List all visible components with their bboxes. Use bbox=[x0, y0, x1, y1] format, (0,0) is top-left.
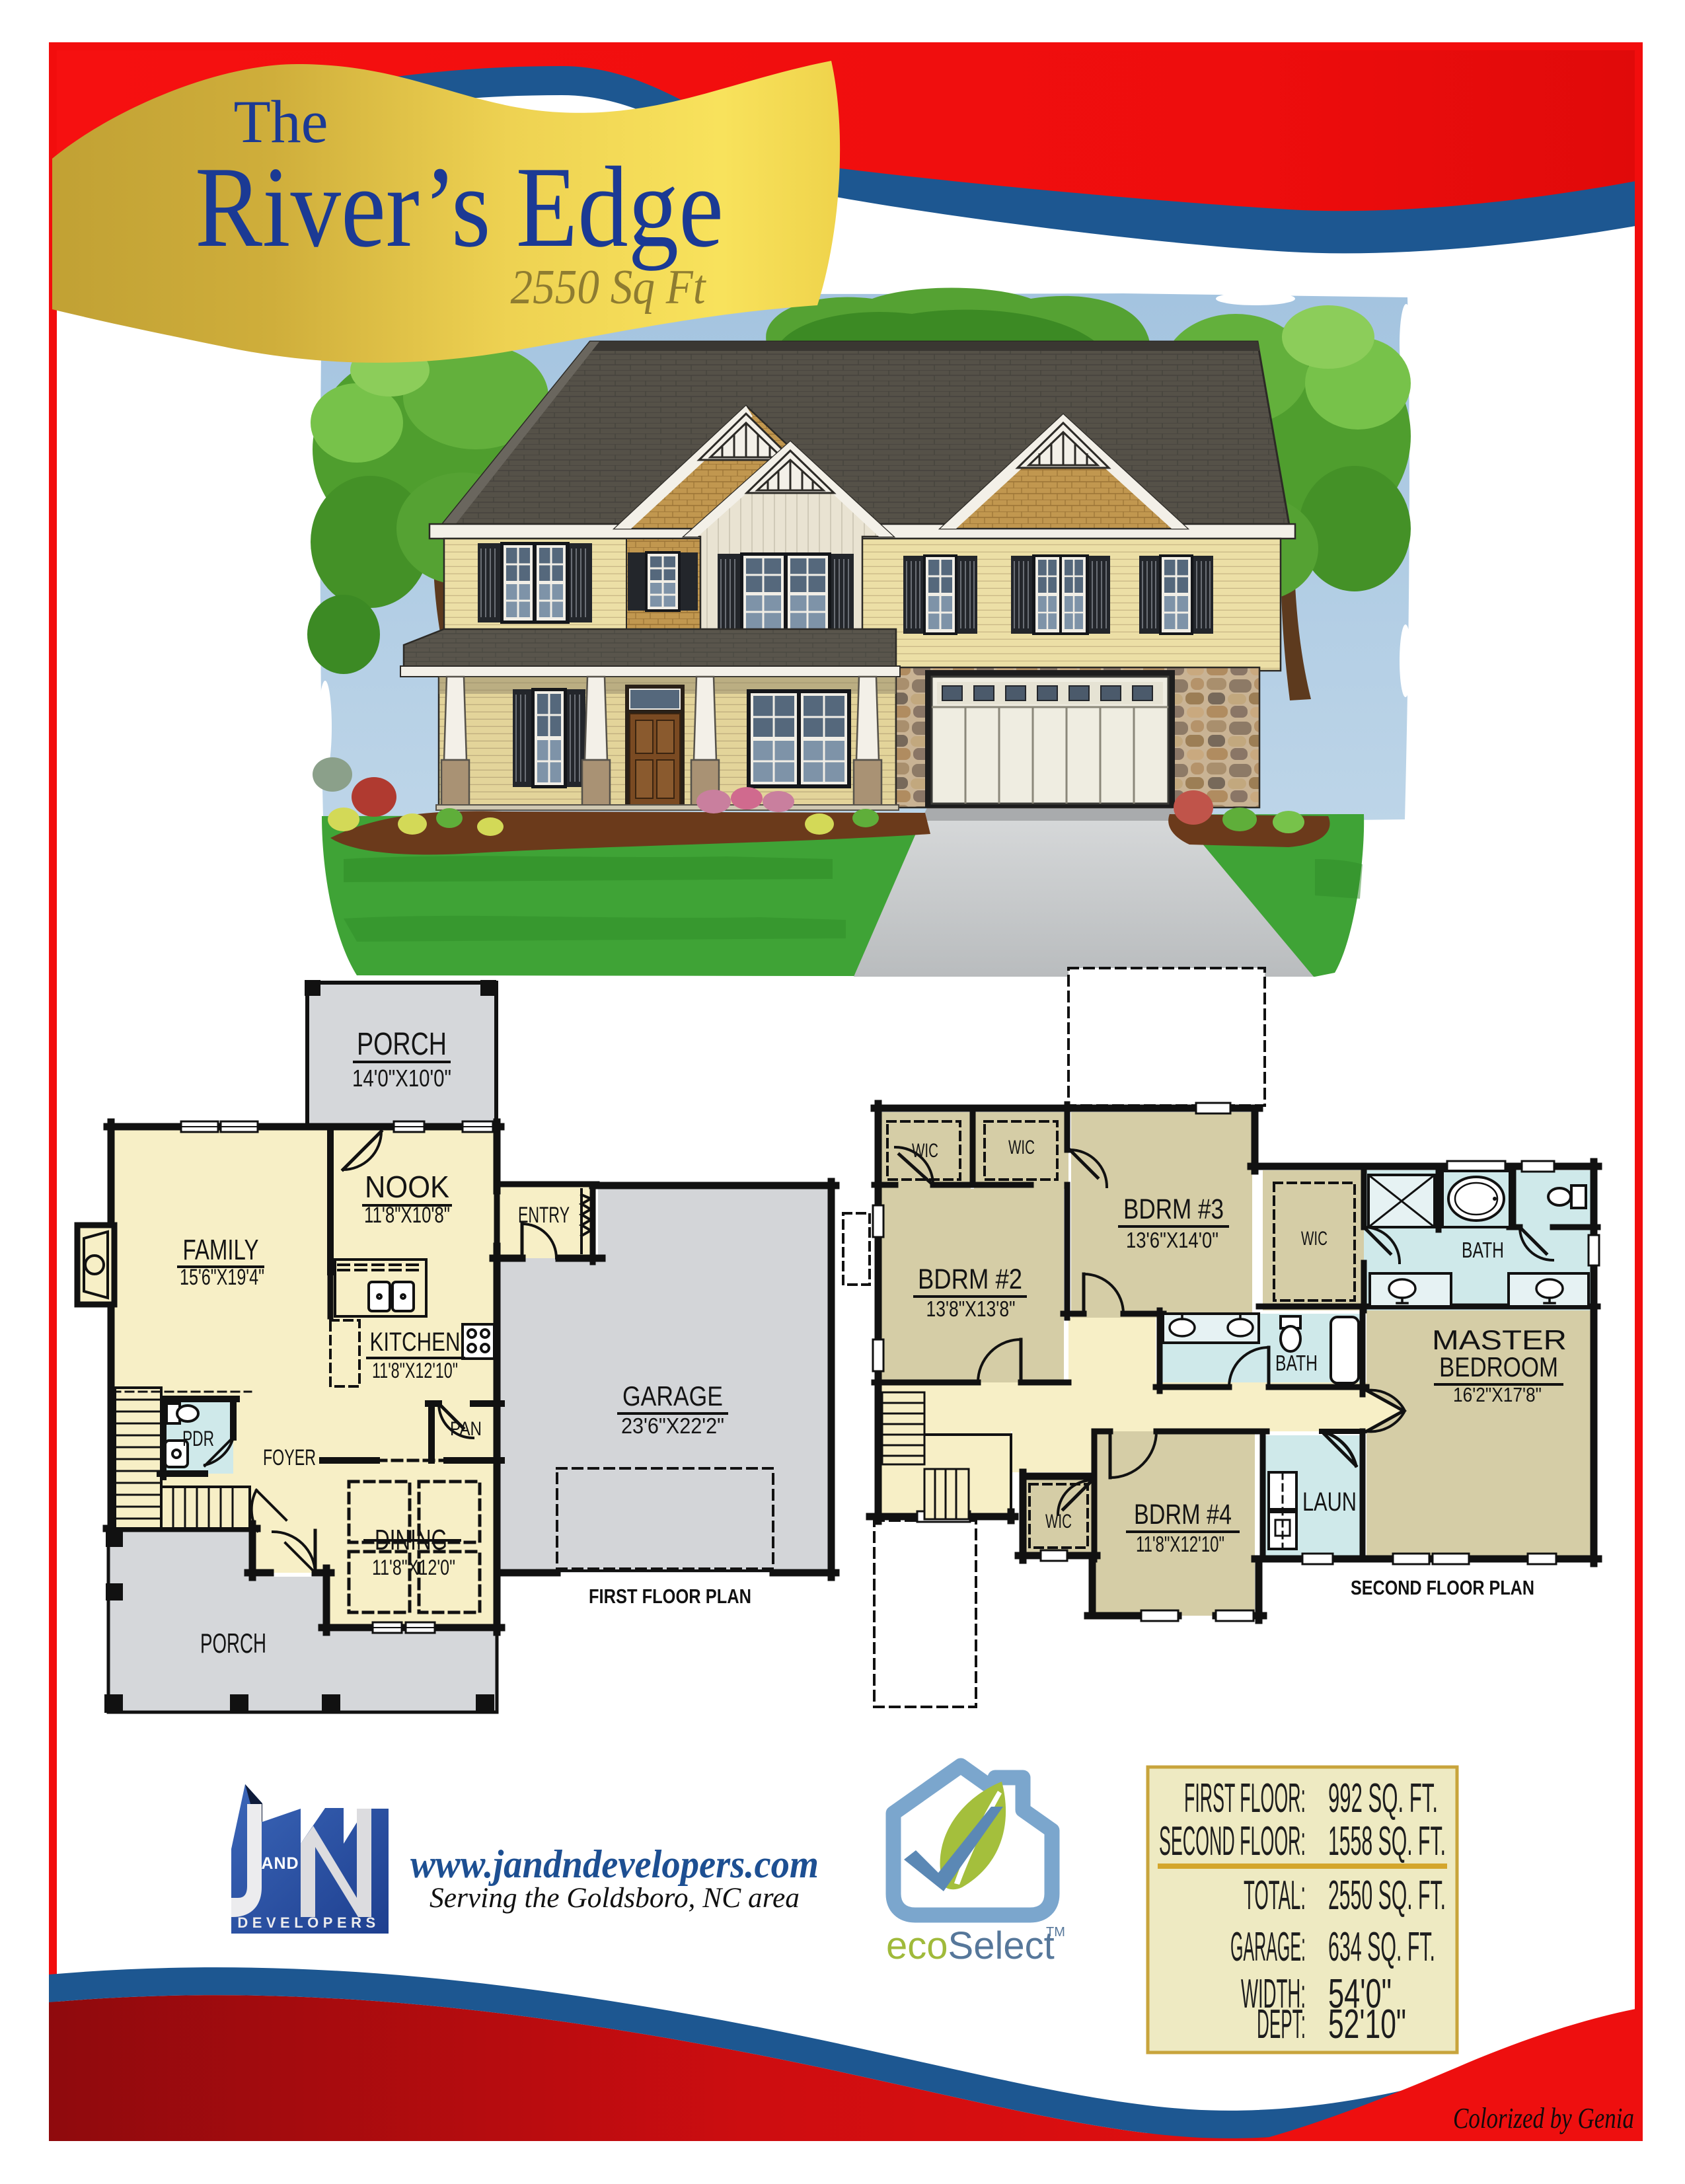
svg-text:2550 Sq Ft: 2550 Sq Ft bbox=[511, 260, 707, 315]
svg-text:BDRM #2: BDRM #2 bbox=[918, 1263, 1022, 1295]
svg-text:www.jandndevelopers.com: www.jandndevelopers.com bbox=[410, 1842, 819, 1886]
svg-text:BEDROOM: BEDROOM bbox=[1439, 1351, 1558, 1382]
svg-text:11'8"X12'10": 11'8"X12'10" bbox=[1136, 1532, 1224, 1556]
svg-text:11'8"X12'0": 11'8"X12'0" bbox=[372, 1556, 455, 1579]
svg-text:AND: AND bbox=[261, 1854, 299, 1873]
svg-text:MASTER: MASTER bbox=[1432, 1324, 1567, 1355]
svg-text:52'10": 52'10" bbox=[1328, 2002, 1406, 2047]
svg-text:BDRM #4: BDRM #4 bbox=[1134, 1499, 1232, 1530]
svg-text:FIRST FLOOR PLAN: FIRST FLOOR PLAN bbox=[589, 1585, 751, 1608]
svg-text:634 SQ. FT.: 634 SQ. FT. bbox=[1328, 1924, 1435, 1970]
svg-text:SECOND FLOOR:: SECOND FLOOR: bbox=[1159, 1819, 1306, 1864]
svg-text:PDR: PDR bbox=[182, 1427, 214, 1450]
svg-text:SECOND FLOOR PLAN: SECOND FLOOR PLAN bbox=[1351, 1576, 1534, 1599]
svg-text:WIC: WIC bbox=[1301, 1228, 1328, 1250]
svg-text:ENTRY: ENTRY bbox=[518, 1203, 570, 1228]
svg-text:Colorized by Genia: Colorized by Genia bbox=[1453, 2102, 1634, 2134]
svg-text:River’s Edge: River’s Edge bbox=[195, 143, 724, 271]
svg-text:14'0"X10'0": 14'0"X10'0" bbox=[352, 1065, 451, 1092]
svg-text:PORCH: PORCH bbox=[200, 1628, 266, 1659]
svg-text:GARAGE: GARAGE bbox=[622, 1380, 723, 1412]
svg-text:DEPT:: DEPT: bbox=[1257, 2002, 1306, 2047]
svg-text:GARAGE:: GARAGE: bbox=[1230, 1924, 1306, 1970]
svg-text:WIC: WIC bbox=[1045, 1511, 1072, 1532]
svg-text:Serving the Goldsboro, NC area: Serving the Goldsboro, NC area bbox=[430, 1883, 800, 1914]
svg-text:NOOK: NOOK bbox=[365, 1170, 449, 1204]
svg-text:16'2"X17'8": 16'2"X17'8" bbox=[1453, 1383, 1542, 1406]
svg-text:FOYER: FOYER bbox=[263, 1445, 316, 1470]
svg-text:11'8"X10'8": 11'8"X10'8" bbox=[364, 1203, 450, 1228]
svg-text:TOTAL:: TOTAL: bbox=[1244, 1873, 1306, 1918]
svg-text:11'8"X12'10": 11'8"X12'10" bbox=[372, 1359, 458, 1382]
svg-text:FIRST FLOOR:: FIRST FLOOR: bbox=[1184, 1776, 1306, 1821]
svg-text:WIC: WIC bbox=[1008, 1137, 1035, 1158]
svg-text:FAMILY: FAMILY bbox=[183, 1234, 259, 1266]
svg-text:13'8"X13'8": 13'8"X13'8" bbox=[926, 1297, 1016, 1321]
svg-text:2550 SQ. FT.: 2550 SQ. FT. bbox=[1328, 1873, 1446, 1918]
svg-text:ecoSelect: ecoSelect bbox=[886, 1924, 1055, 1967]
svg-text:PAN: PAN bbox=[450, 1418, 482, 1440]
svg-text:WIC: WIC bbox=[912, 1140, 938, 1162]
svg-text:23'6"X22'2": 23'6"X22'2" bbox=[621, 1413, 724, 1438]
svg-text:1558 SQ. FT.: 1558 SQ. FT. bbox=[1328, 1819, 1446, 1864]
svg-text:BATH: BATH bbox=[1462, 1238, 1504, 1262]
svg-text:LAUN: LAUN bbox=[1302, 1487, 1357, 1517]
svg-text:13'6"X14'0": 13'6"X14'0" bbox=[1126, 1228, 1218, 1252]
svg-text:BDRM #3: BDRM #3 bbox=[1123, 1193, 1224, 1225]
svg-text:BATH: BATH bbox=[1275, 1351, 1318, 1375]
svg-text:PORCH: PORCH bbox=[357, 1027, 447, 1062]
svg-text:DEVELOPERS: DEVELOPERS bbox=[237, 1914, 379, 1931]
svg-text:15'6"X19'4": 15'6"X19'4" bbox=[180, 1265, 264, 1290]
svg-text:TM: TM bbox=[1046, 1925, 1065, 1939]
svg-text:KITCHEN: KITCHEN bbox=[370, 1328, 461, 1357]
svg-text:992 SQ. FT.: 992 SQ. FT. bbox=[1328, 1776, 1438, 1821]
